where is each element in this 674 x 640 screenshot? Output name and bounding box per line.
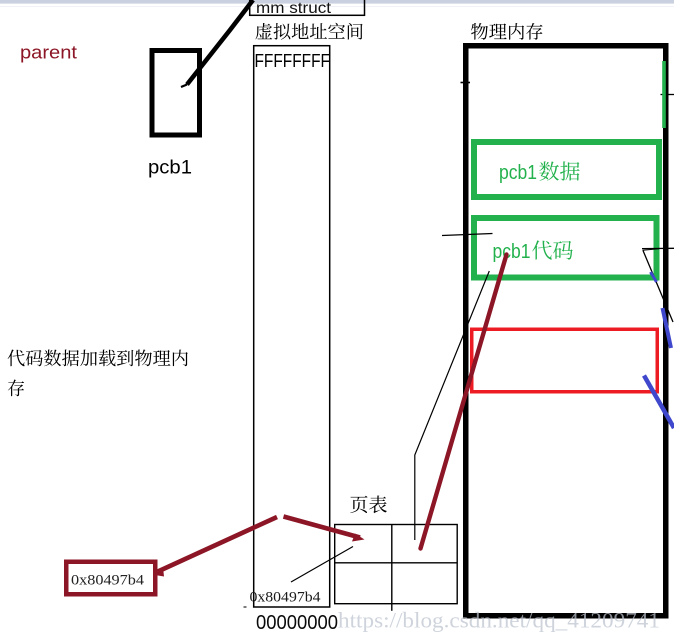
svg-text:pcb1: pcb1 <box>499 162 537 184</box>
svg-text:https://blog.csdn.net/qq_41209: https://blog.csdn.net/qq_41209741 <box>338 608 660 633</box>
svg-text:0x80497b4: 0x80497b4 <box>250 590 322 606</box>
svg-text:0x80497b4: 0x80497b4 <box>71 573 145 589</box>
svg-text:00000000: 00000000 <box>256 611 338 634</box>
svg-text:pcb1: pcb1 <box>148 158 192 179</box>
svg-text:mm struct: mm struct <box>256 0 332 17</box>
svg-text:pcb1: pcb1 <box>493 241 531 263</box>
svg-text:FFFFFFFF: FFFFFFFF <box>255 50 331 71</box>
svg-text:parent: parent <box>20 43 77 63</box>
